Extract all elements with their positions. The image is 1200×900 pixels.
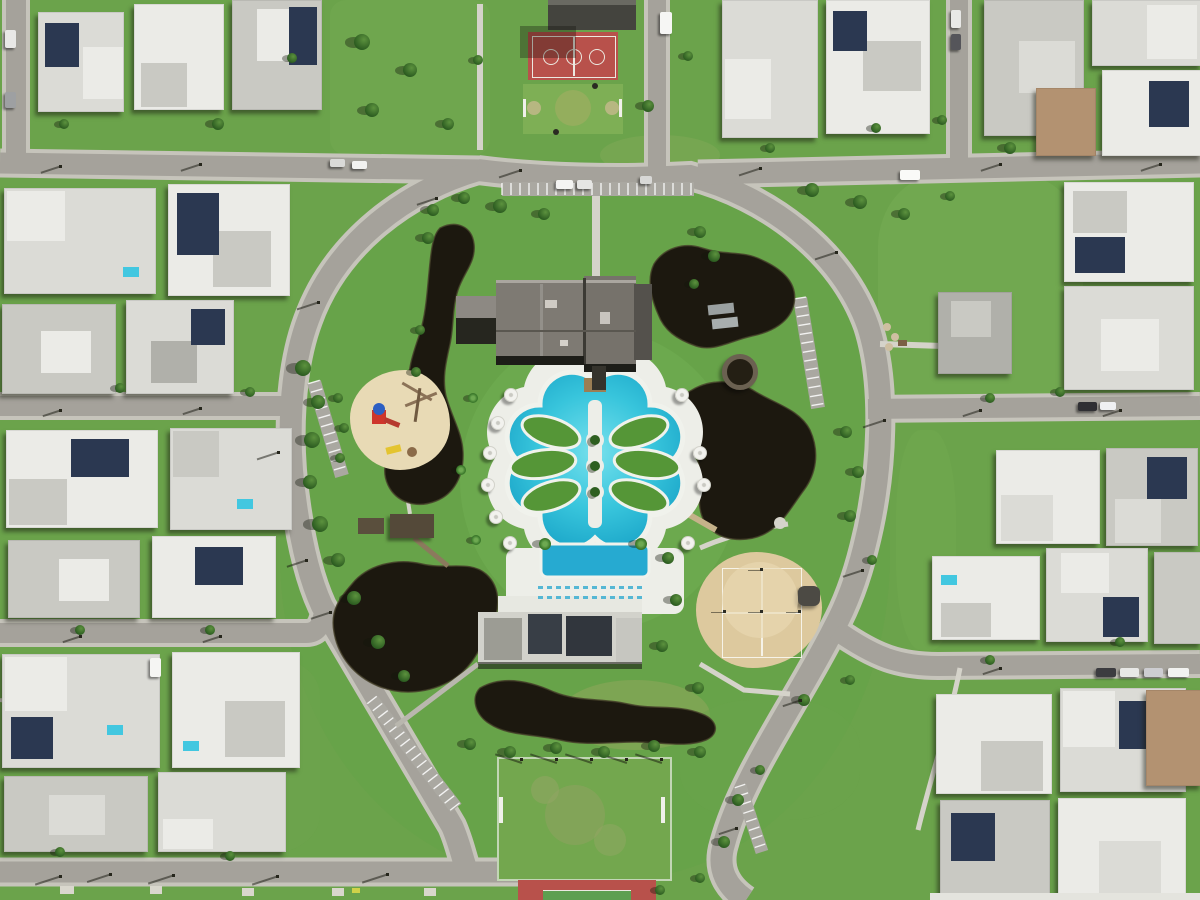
island-tree (590, 487, 600, 497)
house-roof (172, 652, 300, 768)
light-pole (79, 635, 82, 638)
car (640, 176, 652, 184)
tree (311, 395, 325, 409)
tree (371, 635, 385, 649)
house-roof (158, 772, 286, 852)
pergola-small (358, 518, 384, 534)
house-roof (1146, 690, 1200, 786)
house-roof-section (1061, 553, 1109, 593)
light-pole (317, 301, 320, 304)
floodlight-pole (590, 758, 593, 761)
house-roof (38, 12, 124, 112)
detail-rect (523, 99, 526, 117)
light-pole (386, 873, 389, 876)
tree (598, 746, 610, 758)
lap-pool (541, 544, 649, 577)
light-pole (759, 167, 762, 170)
palm-tree (456, 465, 466, 475)
house-roof-section (1147, 5, 1197, 59)
lounge-chair (556, 586, 561, 589)
lounge-chair (619, 586, 624, 589)
road-asphalt (698, 163, 1200, 174)
light-pole (835, 251, 838, 254)
palm-tree (471, 535, 481, 545)
tree (335, 453, 345, 463)
house-roof-section (7, 191, 65, 241)
detail-rect (352, 888, 360, 893)
road-asphalt (0, 163, 480, 170)
house-roof (2, 304, 116, 394)
island-tree (590, 435, 600, 445)
car (1168, 668, 1189, 677)
umbrella (693, 446, 707, 460)
tree (694, 746, 706, 758)
tree (845, 675, 855, 685)
clubhouse-roof (583, 278, 586, 364)
clubhouse-roof (634, 284, 652, 360)
tree (422, 232, 434, 244)
house-roof (170, 428, 292, 530)
tree (287, 53, 297, 63)
solar-panels (71, 439, 129, 477)
house-roof-section (83, 47, 123, 99)
lounge-chair (628, 596, 633, 599)
detail-dot (883, 323, 891, 331)
tree (245, 387, 255, 397)
tree (411, 367, 421, 377)
tree (840, 426, 852, 438)
solar-panels (45, 23, 79, 67)
parking-strip (372, 700, 456, 808)
lounge-chair (592, 596, 597, 599)
tree (937, 115, 947, 125)
house-roof-section (1115, 499, 1161, 543)
detail-rect (332, 888, 344, 896)
floodlight-pole (660, 758, 663, 761)
solar-panels (191, 309, 225, 345)
light-pole (883, 419, 886, 422)
tree (692, 682, 704, 694)
solar-panels (833, 11, 867, 51)
house-roof-section (1001, 495, 1053, 541)
light-pole (277, 451, 280, 454)
light-pole (199, 407, 202, 410)
car (330, 159, 345, 167)
parking-strip (800, 298, 818, 408)
detail-rect (619, 99, 622, 117)
tree (689, 279, 699, 289)
tree (331, 553, 345, 567)
pond-northeast (650, 246, 795, 348)
tree (75, 625, 85, 635)
house-roof (6, 430, 158, 528)
house-roof (1106, 448, 1198, 546)
house-roof-section (1101, 319, 1159, 371)
court-shade-structure (548, 0, 636, 5)
car (5, 30, 16, 48)
umbrella (504, 388, 518, 402)
light-pole (519, 169, 522, 172)
house-roof-section (951, 301, 991, 337)
tree (303, 475, 317, 489)
house-roof (1036, 88, 1096, 156)
detail-dot (774, 517, 786, 529)
detail-dot (885, 343, 893, 351)
solar-panels (1103, 597, 1139, 637)
tree (504, 746, 516, 758)
umbrella (481, 478, 495, 492)
tree (642, 100, 654, 112)
car (150, 658, 161, 677)
light-pole (1159, 163, 1162, 166)
tree (655, 885, 665, 895)
lounge-chair (565, 586, 570, 589)
light-pole (1119, 409, 1122, 412)
palm-tree (468, 393, 478, 403)
detail-dot (722, 562, 798, 638)
pool-house-roof (528, 614, 562, 654)
umbrella (681, 536, 695, 550)
tree (694, 226, 706, 238)
tree (55, 847, 65, 857)
palm-tree (539, 538, 551, 550)
detail-rect (242, 888, 254, 896)
house-roof-section (1073, 191, 1127, 233)
tennis-court-inner (543, 890, 631, 900)
umbrella (503, 536, 517, 550)
tree (415, 325, 425, 335)
house-roof-section (49, 795, 105, 835)
car (900, 170, 920, 180)
light-pole (59, 165, 62, 168)
car (951, 10, 961, 28)
light-pole (199, 163, 202, 166)
backyard-pool (183, 741, 199, 751)
tree (1055, 387, 1065, 397)
tree (225, 851, 235, 861)
car (5, 92, 16, 108)
house-roof-section (163, 819, 213, 849)
lounge-chair (574, 586, 579, 589)
tree (683, 51, 693, 61)
tree (347, 591, 361, 605)
detail-rect (424, 888, 436, 896)
court-circle (589, 49, 605, 65)
lounge-chair (565, 596, 570, 599)
house-roof-section (151, 341, 197, 383)
house-roof-section (173, 431, 219, 477)
house-roof-section (59, 559, 109, 601)
car (1096, 668, 1116, 677)
tree (365, 103, 379, 117)
net-post (798, 610, 801, 613)
solar-panels (1147, 457, 1187, 499)
clubhouse-roof (560, 340, 568, 346)
detail-dot (605, 101, 619, 115)
tree (295, 360, 311, 376)
tree (304, 432, 320, 448)
solar-panels (177, 193, 219, 255)
tree (755, 765, 765, 775)
lounge-chair (538, 596, 543, 599)
lounge-chair (637, 586, 642, 589)
tree (867, 555, 877, 565)
house-roof (8, 540, 140, 618)
backyard-pool (941, 575, 957, 585)
aerial-photo-residential-community (0, 0, 1200, 900)
house-roof-section (225, 701, 285, 757)
tree (765, 143, 775, 153)
pond-east (680, 382, 816, 540)
tree (312, 516, 328, 532)
house-roof (1064, 182, 1194, 282)
car (1144, 668, 1163, 677)
house-roof-section (941, 603, 991, 637)
house-roof (1058, 798, 1186, 900)
house-roof (722, 0, 818, 138)
house-roof-section (863, 41, 921, 91)
tree (718, 836, 730, 848)
house-roof-section (1099, 841, 1161, 897)
clubhouse-roof (584, 276, 636, 366)
tree (852, 466, 864, 478)
tree (985, 655, 995, 665)
lounge-chair (592, 586, 597, 589)
tree (59, 119, 69, 129)
light-pole (329, 611, 332, 614)
light-pole (861, 569, 864, 572)
house-roof (168, 184, 290, 296)
car (352, 161, 367, 169)
clubhouse-roof (600, 312, 610, 324)
light-pole (172, 874, 175, 877)
house-roof (232, 0, 322, 110)
detail-dot (373, 403, 385, 415)
clubhouse-roof (496, 356, 584, 365)
house-roof (1046, 548, 1148, 642)
clubhouse-roof (496, 280, 636, 283)
detail-dot (553, 129, 559, 135)
tree (464, 738, 476, 750)
lounge-chair (547, 596, 552, 599)
tree (898, 208, 910, 220)
house-roof-section (9, 479, 67, 525)
car (1078, 402, 1097, 411)
house-roof (940, 800, 1050, 896)
lounge-chair (619, 596, 624, 599)
car (660, 12, 672, 34)
house-roof-section (1019, 41, 1075, 93)
light-pole (435, 197, 438, 200)
tree (493, 199, 507, 213)
pond-south (475, 680, 715, 744)
detail-rect (661, 797, 665, 823)
tree (945, 191, 955, 201)
house-roof (152, 536, 276, 618)
tree (871, 123, 881, 133)
car (577, 180, 592, 189)
lounge-chair (583, 596, 588, 599)
clubhouse-roof (592, 366, 606, 390)
house-roof-section (213, 231, 271, 287)
tree (205, 625, 215, 635)
detail-rect (150, 886, 162, 894)
pool-house-roof (478, 662, 642, 669)
house-roof-section (1063, 691, 1115, 747)
tree (115, 383, 125, 393)
tree (985, 393, 995, 403)
umbrella (697, 478, 711, 492)
solar-panels (195, 547, 243, 585)
tree (212, 118, 224, 130)
detail-dot (594, 824, 626, 856)
pool-house-roof (484, 618, 522, 660)
tree (339, 423, 349, 433)
house-roof (4, 776, 148, 852)
light-pole (999, 667, 1002, 670)
tree (853, 195, 867, 209)
clubhouse-roof (496, 330, 636, 332)
pool-house-roof (616, 618, 642, 662)
detail-dot (555, 90, 591, 126)
house-roof (4, 188, 156, 294)
light-pole (276, 875, 279, 878)
tree (656, 640, 668, 652)
house-roof-section (981, 741, 1043, 791)
lounge-chair (556, 596, 561, 599)
umbrella (483, 446, 497, 460)
solar-panels (1149, 81, 1189, 127)
tree (1115, 637, 1125, 647)
shade-tent (798, 586, 820, 606)
house-roof (134, 4, 224, 110)
tree (805, 183, 819, 197)
net-post (760, 568, 763, 571)
tree (473, 55, 483, 65)
detail-dot (527, 101, 541, 115)
backyard-pool (107, 725, 123, 735)
house-roof (938, 292, 1012, 374)
umbrella (675, 388, 689, 402)
lounge-chair (574, 596, 579, 599)
detail-rect (60, 886, 74, 894)
lounge-chair (601, 596, 606, 599)
car (1120, 668, 1139, 677)
detail-dot (407, 447, 417, 457)
footpath (700, 664, 790, 694)
house-roof-section (141, 63, 187, 107)
house-roof (1092, 0, 1200, 66)
tree (333, 393, 343, 403)
house-roof (996, 450, 1100, 544)
tree (354, 34, 370, 50)
light-pole (59, 875, 62, 878)
lounge-chair (601, 586, 606, 589)
tree (844, 510, 856, 522)
pond-southwest (333, 562, 498, 692)
tree (442, 118, 454, 130)
court-shade-structure (520, 26, 576, 58)
floodlight-pole (555, 758, 558, 761)
palm-tree (635, 538, 647, 550)
tree (1004, 142, 1016, 154)
lounge-chair (610, 596, 615, 599)
detail-dot (592, 83, 598, 89)
house-roof-section (5, 657, 67, 711)
detail-rect (898, 340, 907, 346)
house-roof-section (725, 59, 771, 119)
car (951, 34, 961, 50)
light-pole (735, 827, 738, 830)
tree (670, 594, 682, 606)
gazebo (722, 354, 758, 390)
tree (732, 794, 744, 806)
light-pole (305, 559, 308, 562)
lounge-chair (583, 586, 588, 589)
lounge-chair (610, 586, 615, 589)
tree (708, 250, 720, 262)
wooden-bridge (414, 538, 448, 566)
island-tree (590, 461, 600, 471)
pool-house-roof (566, 616, 612, 656)
house-roof-section (41, 331, 91, 373)
tree (695, 873, 705, 883)
lounge-chair (547, 586, 552, 589)
house-roof (932, 556, 1040, 640)
tree (550, 742, 562, 754)
umbrella (491, 416, 505, 430)
detail-rect (499, 797, 503, 823)
tree (403, 63, 417, 77)
playground-sand (350, 370, 450, 470)
tree (538, 208, 550, 220)
floodlight-pole (520, 758, 523, 761)
light-pole (799, 699, 802, 702)
solar-panels (951, 813, 995, 861)
house-roof (826, 0, 930, 134)
car (556, 180, 573, 189)
tree (398, 670, 410, 682)
umbrella (489, 510, 503, 524)
backyard-pool (123, 267, 139, 277)
house-roof (126, 300, 234, 394)
solar-panels (1075, 237, 1125, 273)
floodlight-pole (625, 758, 628, 761)
lounge-chair (637, 596, 642, 599)
car (1100, 402, 1116, 410)
tree (458, 192, 470, 204)
net-post (760, 610, 763, 613)
tree (662, 552, 674, 564)
lounge-chair (538, 586, 543, 589)
light-pole (979, 409, 982, 412)
clubhouse-roof (545, 300, 557, 308)
light-pole (219, 635, 222, 638)
tree (427, 204, 439, 216)
pergola (390, 514, 434, 538)
light-pole (59, 409, 62, 412)
solar-panels (11, 717, 53, 759)
net-post (723, 610, 726, 613)
backyard-pool (237, 499, 253, 509)
house-roof (1154, 552, 1200, 644)
house-roof (2, 654, 160, 768)
road-asphalt (868, 406, 1200, 409)
light-pole (109, 873, 112, 876)
detail-dot (531, 776, 559, 804)
house-roof (936, 694, 1052, 794)
lounge-chair (628, 586, 633, 589)
